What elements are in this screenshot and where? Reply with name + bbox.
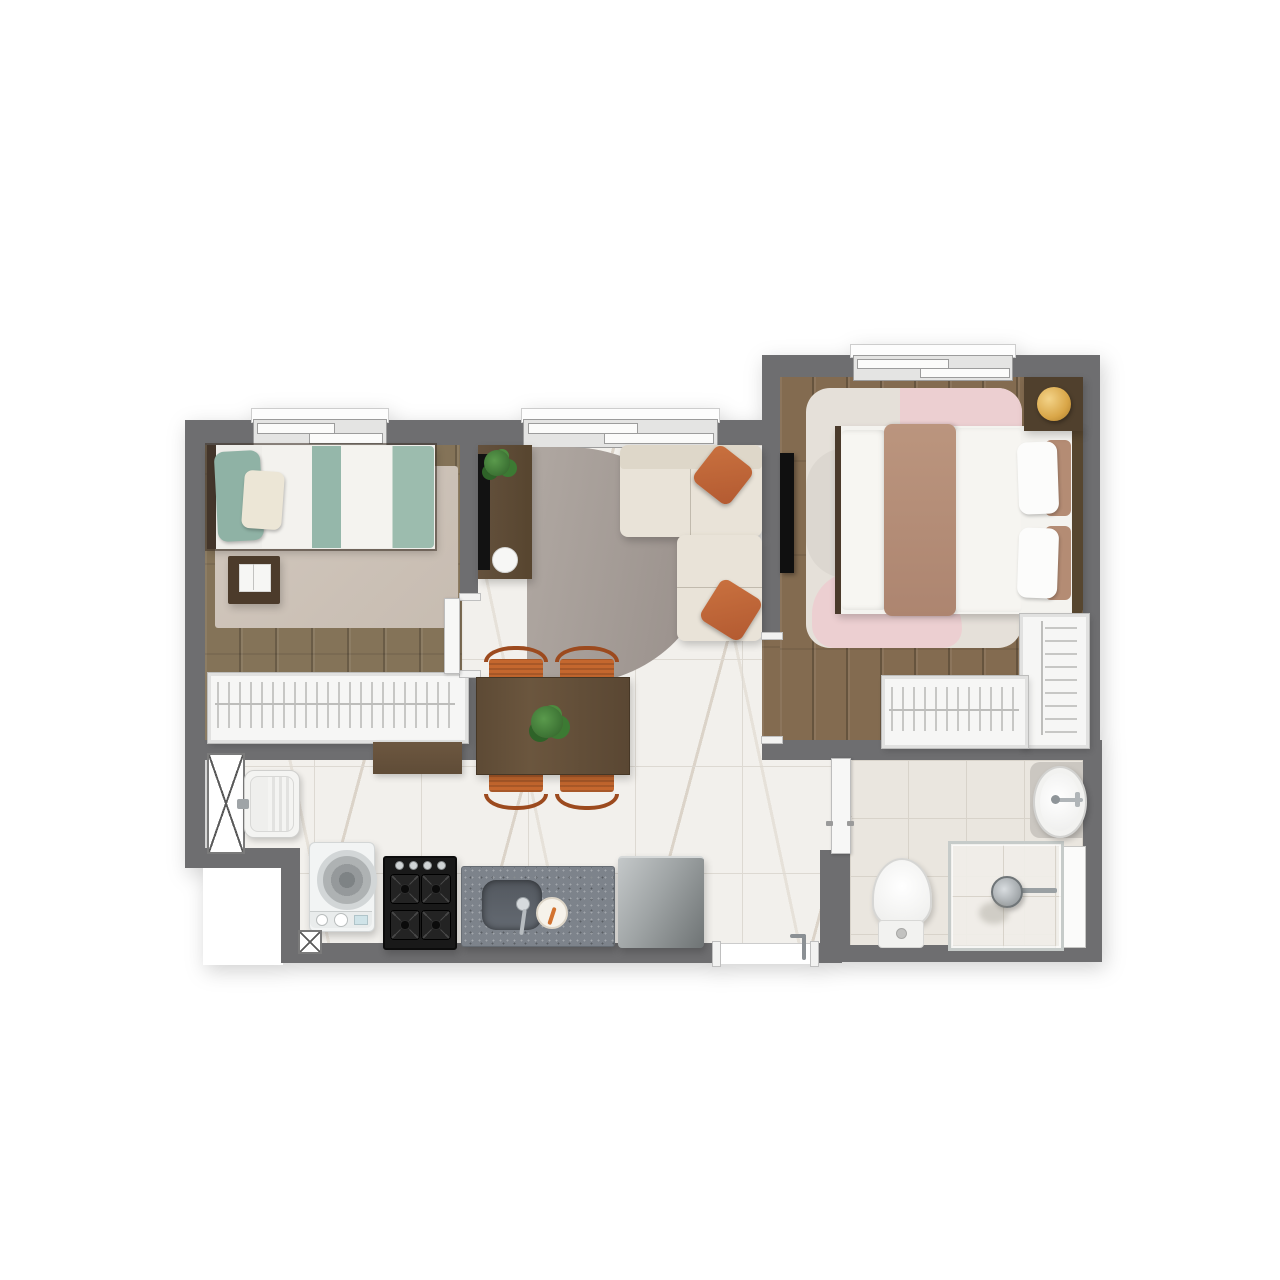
master-bed [835,426,1083,614]
bathroom-toilet [872,858,928,948]
stove-knob [423,861,432,870]
entry-door-handle [788,930,810,962]
master-door-jamb-top [761,632,783,640]
stove-burner [421,910,451,940]
master-bed-tan-blanket [884,424,956,616]
stove-knob [395,861,404,870]
bedroom1-nightstand [228,556,280,604]
gas-point-hatched [298,930,322,954]
wall-master-left [762,377,780,637]
master-nightstand [1024,377,1083,431]
laundry-faucet [237,799,249,809]
bathroom-door-handle-inner [847,821,854,826]
stove-knob [409,861,418,870]
wall-bathroom-left-lower [820,850,850,945]
book-spine-line [253,564,254,590]
chair-back [484,794,548,810]
tv-master [780,453,794,573]
shower-drain-shadow [979,902,1009,924]
master-bed-sheet-fold [841,430,887,610]
kitchen-counter-granite [461,866,615,947]
washing-machine [309,842,375,932]
washing-machine-display [354,915,368,925]
bedroom1-pillow-cream [241,470,285,531]
stove-knob [437,861,446,870]
kitchen-side-counter [373,742,462,774]
wardrobe-hangers [217,682,453,728]
closet-rod [1041,621,1043,735]
washing-machine-lid [317,850,377,910]
gas-stove [383,856,457,950]
entry-jamb-right [810,941,819,967]
round-dish [492,547,518,573]
master-door-jamb-bottom [761,736,783,744]
console-plant [484,450,510,476]
dining-table-plant [531,706,563,738]
stove-burner [421,874,451,904]
gold-lamp [1037,387,1071,421]
bedroom1-door-leaf [444,598,460,674]
closet-rod [889,709,1019,711]
master-bed-headboard [1072,426,1083,614]
washing-machine-knob-2 [334,913,348,927]
bedroom1-door-jamb-top [459,593,481,601]
refrigerator [618,856,704,948]
master-closet-vertical [1020,614,1089,748]
floor-master-door-patch [762,637,780,740]
sofa-seat-divider [690,469,691,537]
toilet-bowl [872,858,932,928]
master-closet-horizontal [882,676,1028,748]
laundry-sink [244,770,300,838]
bathroom-door-handle-outer [826,821,833,826]
window-master-pane-right [920,368,1010,378]
master-bed-duvet [956,428,1022,612]
laundry-sink-basin [250,776,294,832]
bathroom-door-leaf [831,758,851,854]
window-bedroom1-pane-right [309,433,383,444]
chair-back [555,794,619,810]
entry-jamb-left [712,941,721,967]
book [239,564,271,592]
basin-faucet-spout [1051,795,1060,804]
bedroom1-bed [207,445,435,549]
master-pillow-white-top [1017,441,1059,514]
wall-bottom-hall-stub [816,943,842,963]
bathroom-basin [1033,766,1087,838]
closet-shelf-lines [1045,623,1077,733]
bathroom-shower [948,841,1064,951]
bedroom1-duvet [262,446,434,548]
stove-burner [390,910,420,940]
basin-faucet-handle [1075,792,1080,807]
washing-machine-knob-1 [316,914,328,926]
wall-bedroom1-right-upper [460,445,478,598]
bedroom1-wardrobe-rack [208,673,468,743]
handle-bar-vertical [802,934,806,960]
window-living-pane-right [604,433,714,444]
wardrobe-rod [215,703,455,705]
stove-burner [390,874,420,904]
toilet-flush-button [896,928,907,939]
kitchen-sink-basin [482,880,542,930]
floor-plan [0,0,1280,1280]
wall-left [185,420,205,868]
outside-notch-cover [203,868,283,965]
floor-plan-canvas [0,0,1280,1280]
master-pillow-white-bottom [1017,527,1059,598]
